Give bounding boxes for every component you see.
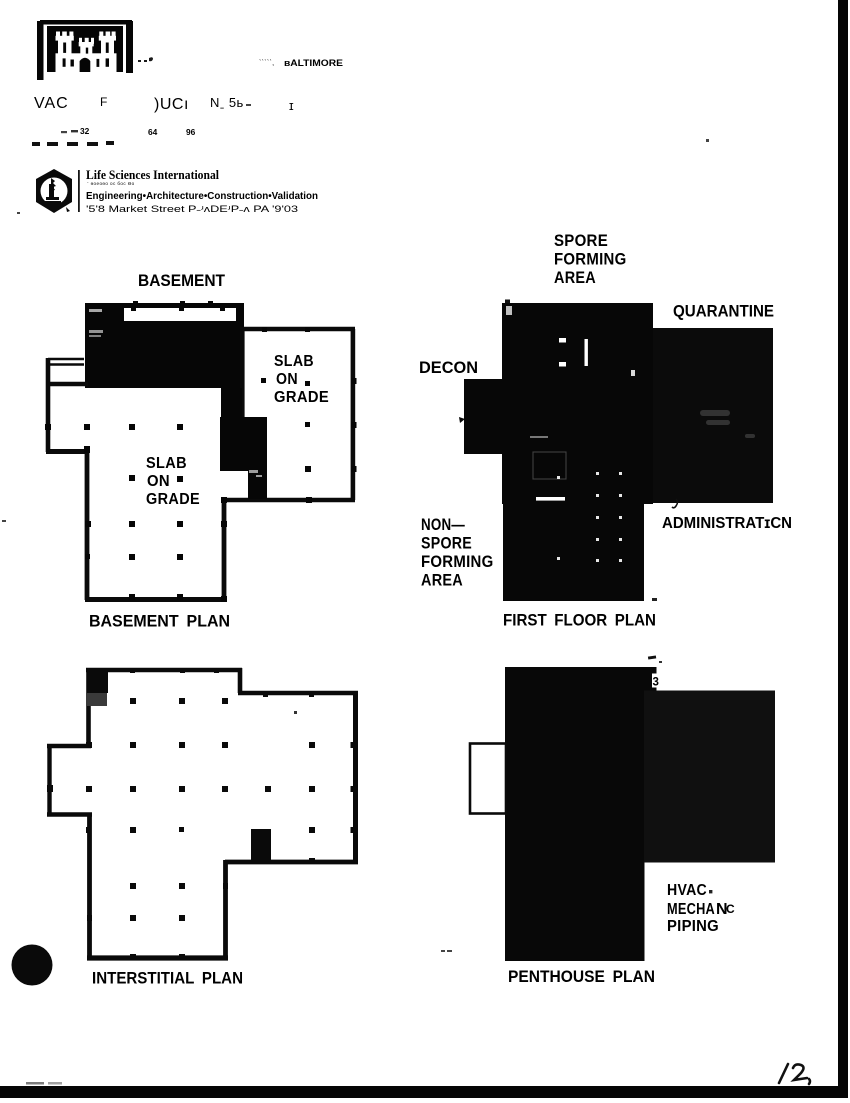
svg-text:32: 32 — [80, 126, 90, 136]
svg-text:SPORE: SPORE — [421, 534, 472, 553]
svg-text:HVAC: HVAC — [667, 882, 707, 899]
svg-text:F: F — [100, 95, 107, 109]
svg-text:VAC: VAC — [34, 95, 69, 112]
svg-text:BASEMENT: BASEMENT — [138, 271, 226, 290]
svg-text:3: 3 — [653, 677, 659, 689]
svg-text:DECON: DECON — [419, 358, 478, 377]
svg-text:SPORE: SPORE — [554, 231, 608, 250]
svg-text:ʹ5ʹ8 Market Street P˗ʴʌDEʴ: ʹ5ʹ8 Market Street P˗ʴʌDEʴP˗ʌ PA ʹ9ʹ03 — [86, 203, 298, 214]
svg-text:FIRST FLOOR PLAN: FIRST FLOOR PLAN — [503, 611, 656, 630]
svg-text:INTERSTITIAL PLAN: INTERSTITIAL PLAN — [92, 969, 243, 988]
svg-text:Nˍ 5ь: Nˍ 5ь — [210, 95, 244, 110]
svg-text:)UCı: )UCı — [154, 96, 189, 113]
svg-text:ON: ON — [276, 371, 298, 388]
svg-text:ON: ON — [147, 473, 170, 490]
svg-text:SLAB: SLAB — [274, 353, 314, 370]
svg-text:64: 64 — [148, 127, 158, 137]
svg-text:GRADE: GRADE — [274, 389, 329, 406]
svg-text:SLAB: SLAB — [146, 455, 187, 472]
svg-text:ˋˋˋˋˋ,: ˋˋˋˋˋ, — [259, 60, 274, 67]
svg-text:ˉ өоеоөо ос бос Өо: ˉ өоеоөо ос бос Өо — [87, 181, 135, 186]
svg-text:Life Sciences International: Life Sciences International — [86, 167, 219, 182]
svg-text:PENTHOUSE PLAN: PENTHOUSE PLAN — [508, 967, 655, 986]
svg-text:AREA: AREA — [421, 571, 463, 590]
svg-text:QUARANTINE: QUARANTINE — [673, 302, 774, 321]
svg-text:ADMINISTRATɪCN: ADMINISTRATɪCN — [662, 515, 792, 532]
svg-text:Engineering•Architecture•Const: Engineering•Architecture•Construction•Va… — [86, 191, 318, 202]
svg-text:PIPING: PIPING — [667, 918, 719, 935]
svg-text:FORMING: FORMING — [554, 250, 627, 269]
svg-text:вALTIMORE: вALTIMORE — [284, 58, 343, 68]
svg-text:96: 96 — [186, 127, 196, 137]
svg-text:FORMING: FORMING — [421, 552, 494, 571]
svg-text:C: C — [726, 902, 735, 916]
svg-text:MECHA: MECHA — [667, 901, 715, 918]
svg-text:ɪ: ɪ — [289, 98, 294, 113]
svg-text:NON—: NON— — [421, 515, 465, 534]
svg-text:BASEMENT PLAN: BASEMENT PLAN — [89, 612, 230, 631]
svg-text:GRADE: GRADE — [146, 491, 200, 508]
svg-text:AREA: AREA — [554, 268, 596, 287]
